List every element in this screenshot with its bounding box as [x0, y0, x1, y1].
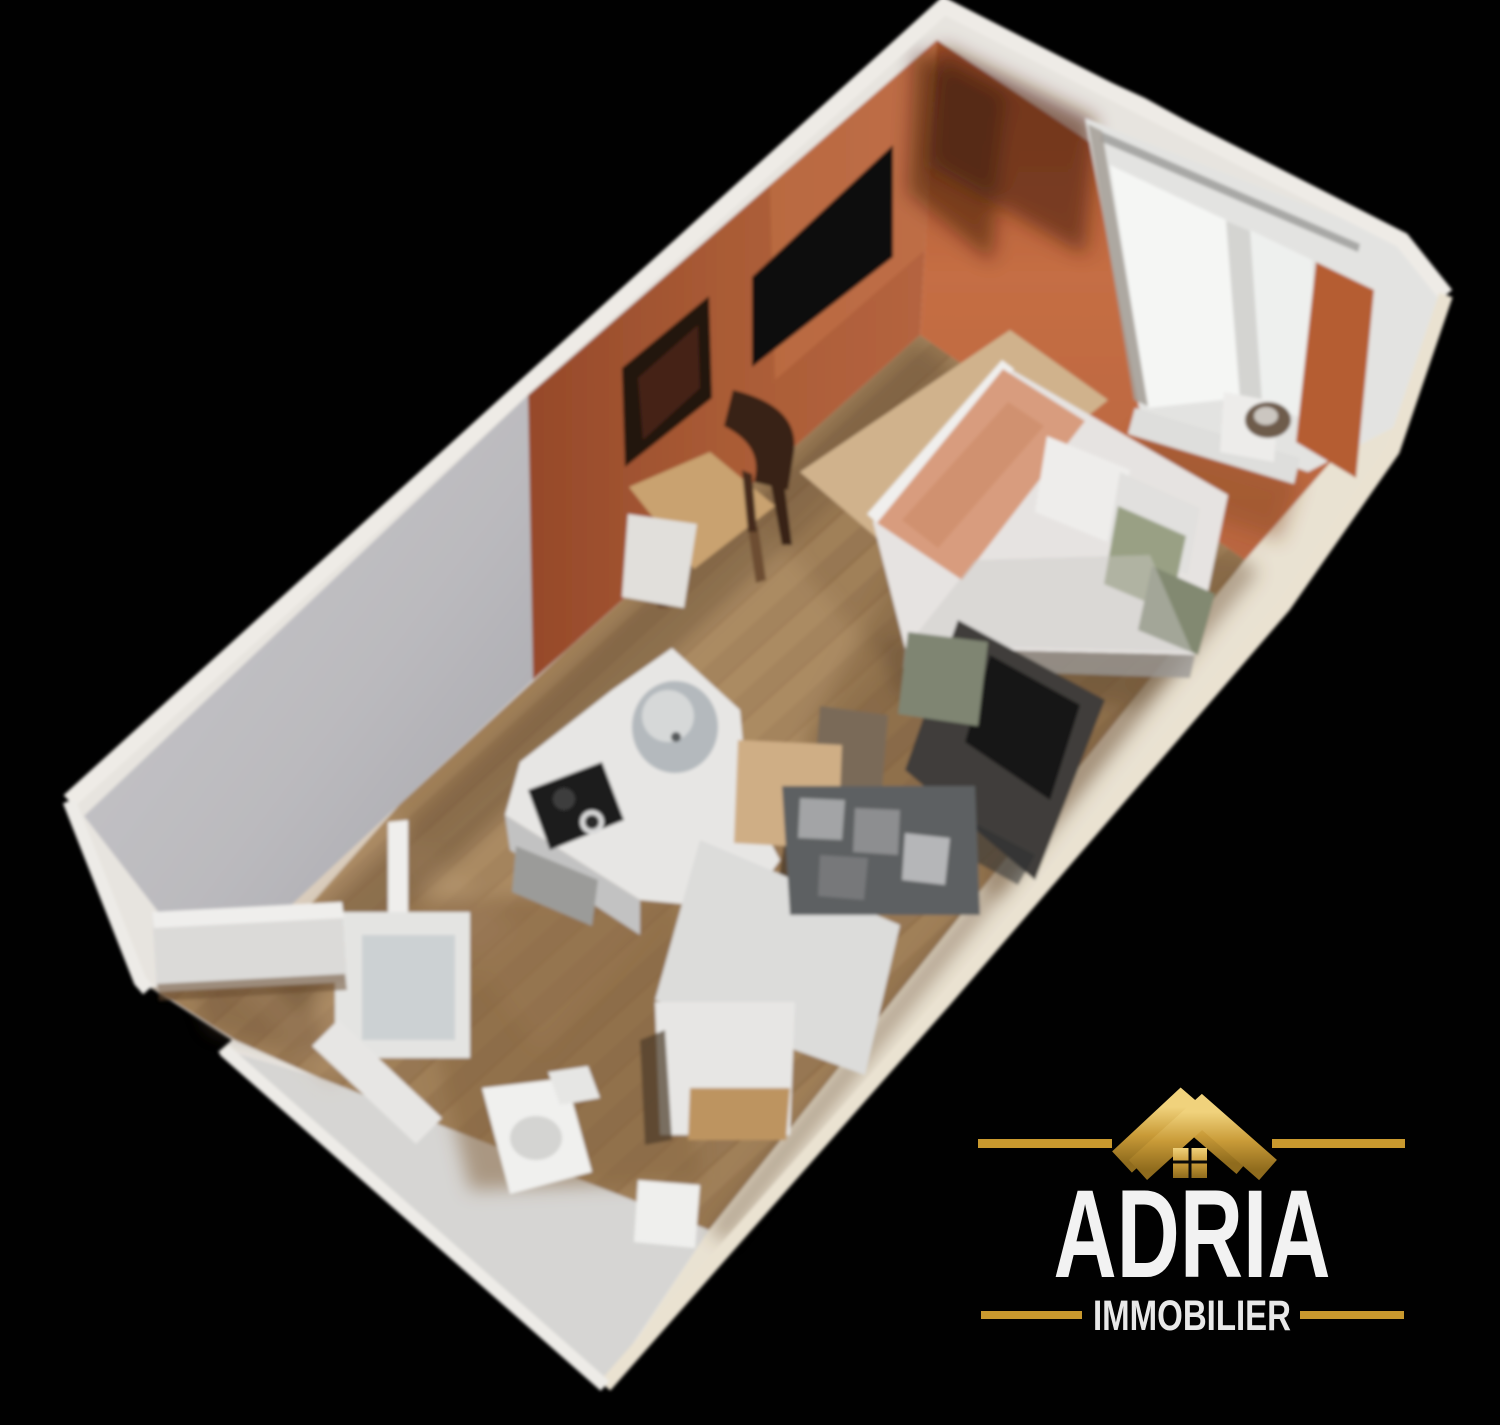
svg-text:IMMOBILIER: IMMOBILIER [1093, 1292, 1291, 1340]
svg-text:ADRIA: ADRIA [1054, 1165, 1331, 1304]
